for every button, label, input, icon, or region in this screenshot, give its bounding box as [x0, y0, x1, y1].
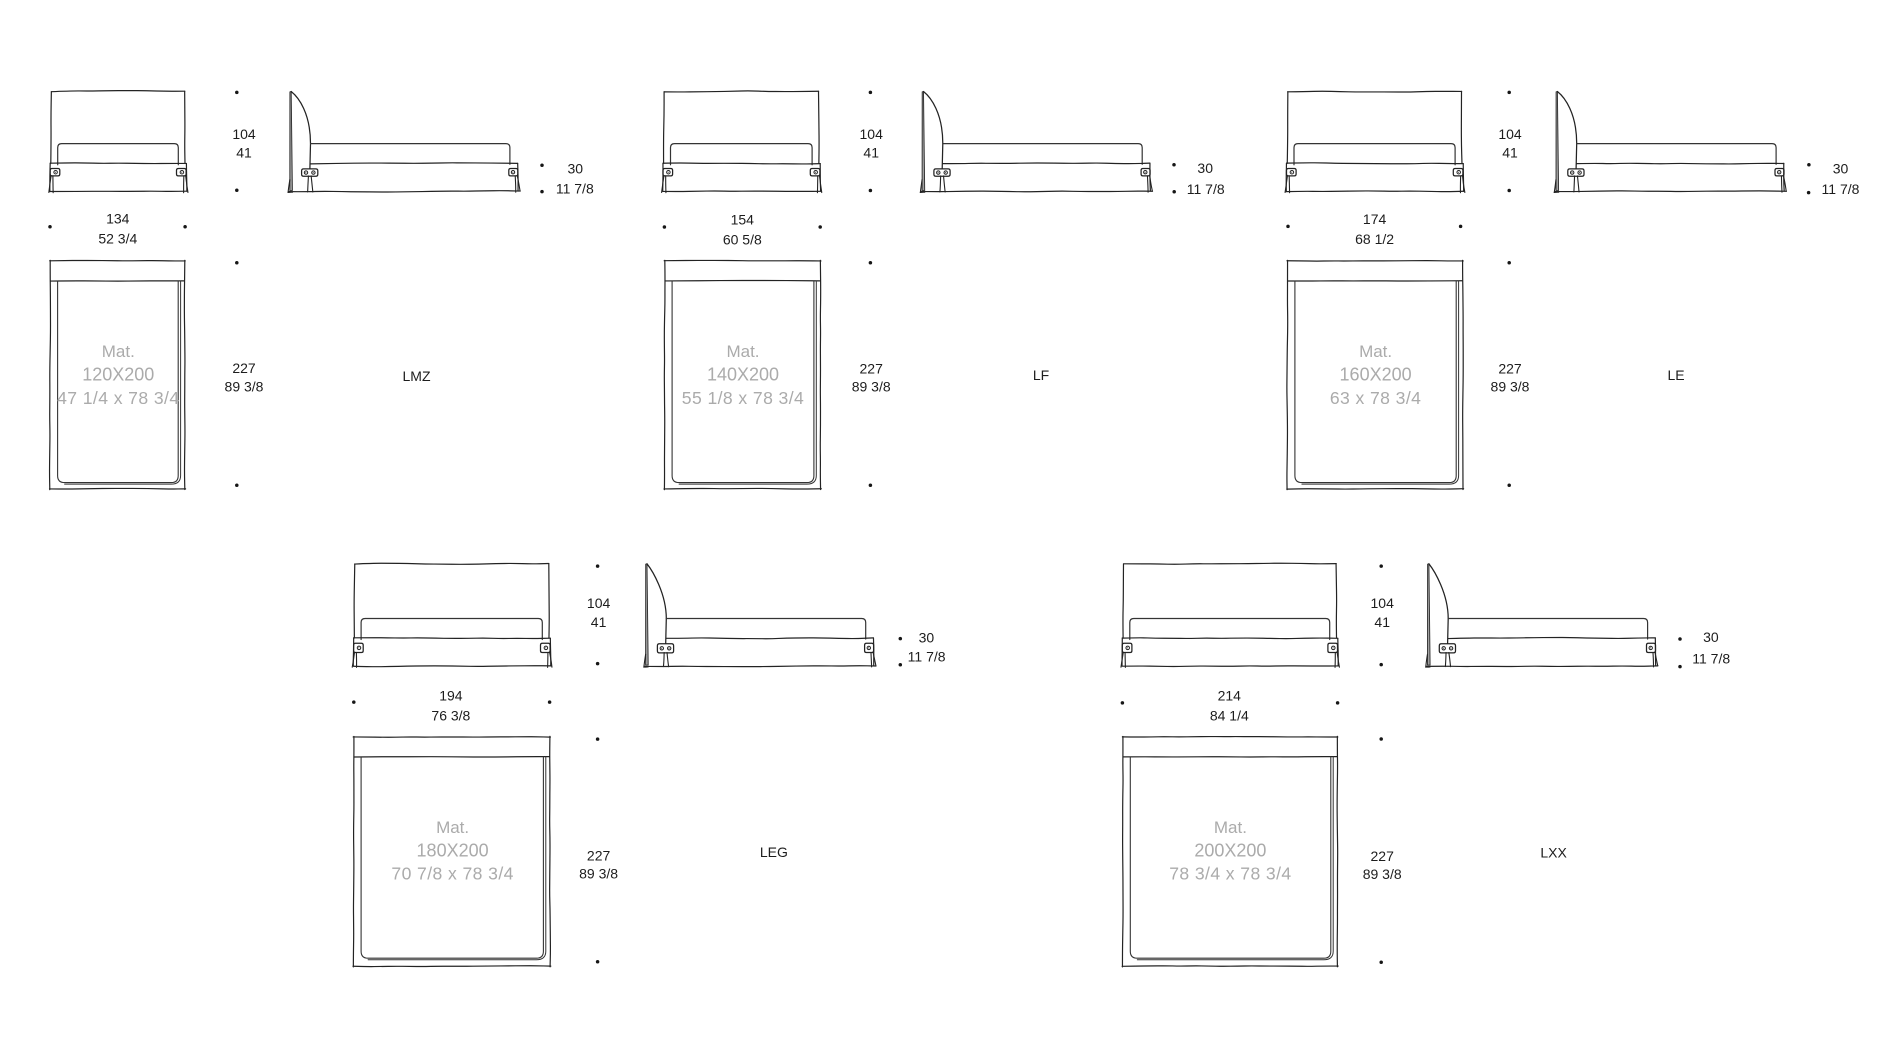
svg-text:76 3/8: 76 3/8 — [431, 707, 470, 723]
svg-text:11 7/8: 11 7/8 — [556, 181, 594, 197]
svg-text:194: 194 — [439, 688, 463, 704]
svg-text:55 1/8 x 78 3/4: 55 1/8 x 78 3/4 — [682, 388, 804, 408]
svg-text:227: 227 — [860, 360, 884, 376]
svg-text:227: 227 — [232, 360, 256, 376]
svg-text:LEG: LEG — [760, 844, 788, 860]
svg-text:30: 30 — [1197, 160, 1213, 176]
svg-text:11 7/8: 11 7/8 — [1692, 651, 1730, 667]
svg-text:78 3/4 x 78 3/4: 78 3/4 x 78 3/4 — [1169, 864, 1291, 884]
svg-text:LXX: LXX — [1540, 844, 1567, 860]
svg-text:41: 41 — [1374, 614, 1390, 630]
svg-text:104: 104 — [1371, 595, 1395, 611]
svg-text:104: 104 — [587, 595, 611, 611]
svg-text:89 3/8: 89 3/8 — [579, 866, 618, 882]
svg-text:214: 214 — [1218, 688, 1242, 704]
svg-text:89 3/8: 89 3/8 — [1491, 378, 1530, 394]
svg-text:63 x 78 3/4: 63 x 78 3/4 — [1330, 388, 1421, 408]
svg-text:Mat.: Mat. — [1359, 342, 1392, 361]
svg-text:200X200: 200X200 — [1194, 841, 1266, 861]
svg-text:60 5/8: 60 5/8 — [723, 231, 762, 247]
svg-text:Mat.: Mat. — [726, 342, 759, 361]
svg-text:84 1/4: 84 1/4 — [1210, 707, 1249, 723]
svg-text:LE: LE — [1667, 367, 1684, 383]
svg-text:30: 30 — [919, 630, 935, 646]
svg-text:11 7/8: 11 7/8 — [1187, 181, 1225, 197]
svg-text:89 3/8: 89 3/8 — [1363, 866, 1402, 882]
svg-text:Mat.: Mat. — [102, 342, 135, 361]
svg-text:134: 134 — [106, 211, 130, 227]
svg-text:47 1/4 x 78 3/4: 47 1/4 x 78 3/4 — [57, 388, 179, 408]
svg-text:11 7/8: 11 7/8 — [908, 648, 946, 664]
svg-text:70 7/8 x 78 3/4: 70 7/8 x 78 3/4 — [391, 864, 513, 884]
svg-text:68 1/2: 68 1/2 — [1355, 231, 1394, 247]
svg-text:174: 174 — [1363, 211, 1387, 227]
svg-text:30: 30 — [1703, 629, 1719, 645]
svg-text:89 3/8: 89 3/8 — [852, 378, 891, 394]
svg-text:89 3/8: 89 3/8 — [225, 378, 264, 394]
svg-text:227: 227 — [1371, 848, 1395, 864]
svg-text:Mat.: Mat. — [1214, 818, 1247, 837]
svg-text:180X200: 180X200 — [417, 841, 489, 861]
svg-text:227: 227 — [587, 847, 611, 863]
svg-text:11 7/8: 11 7/8 — [1822, 181, 1860, 197]
svg-text:41: 41 — [863, 144, 879, 160]
svg-text:Mat.: Mat. — [436, 818, 469, 837]
svg-text:104: 104 — [232, 126, 256, 142]
svg-text:104: 104 — [1498, 126, 1522, 142]
svg-text:41: 41 — [236, 144, 252, 160]
svg-text:LMZ: LMZ — [403, 368, 431, 384]
svg-text:30: 30 — [568, 160, 584, 176]
svg-text:120X200: 120X200 — [82, 365, 154, 385]
svg-text:154: 154 — [731, 212, 755, 228]
svg-text:41: 41 — [591, 614, 607, 630]
svg-text:LF: LF — [1033, 367, 1049, 383]
svg-text:227: 227 — [1498, 360, 1522, 376]
svg-text:104: 104 — [860, 126, 884, 142]
svg-text:41: 41 — [1502, 144, 1518, 160]
svg-text:52 3/4: 52 3/4 — [98, 230, 137, 246]
svg-text:140X200: 140X200 — [707, 365, 779, 385]
svg-text:30: 30 — [1833, 160, 1849, 176]
svg-text:160X200: 160X200 — [1340, 365, 1412, 385]
